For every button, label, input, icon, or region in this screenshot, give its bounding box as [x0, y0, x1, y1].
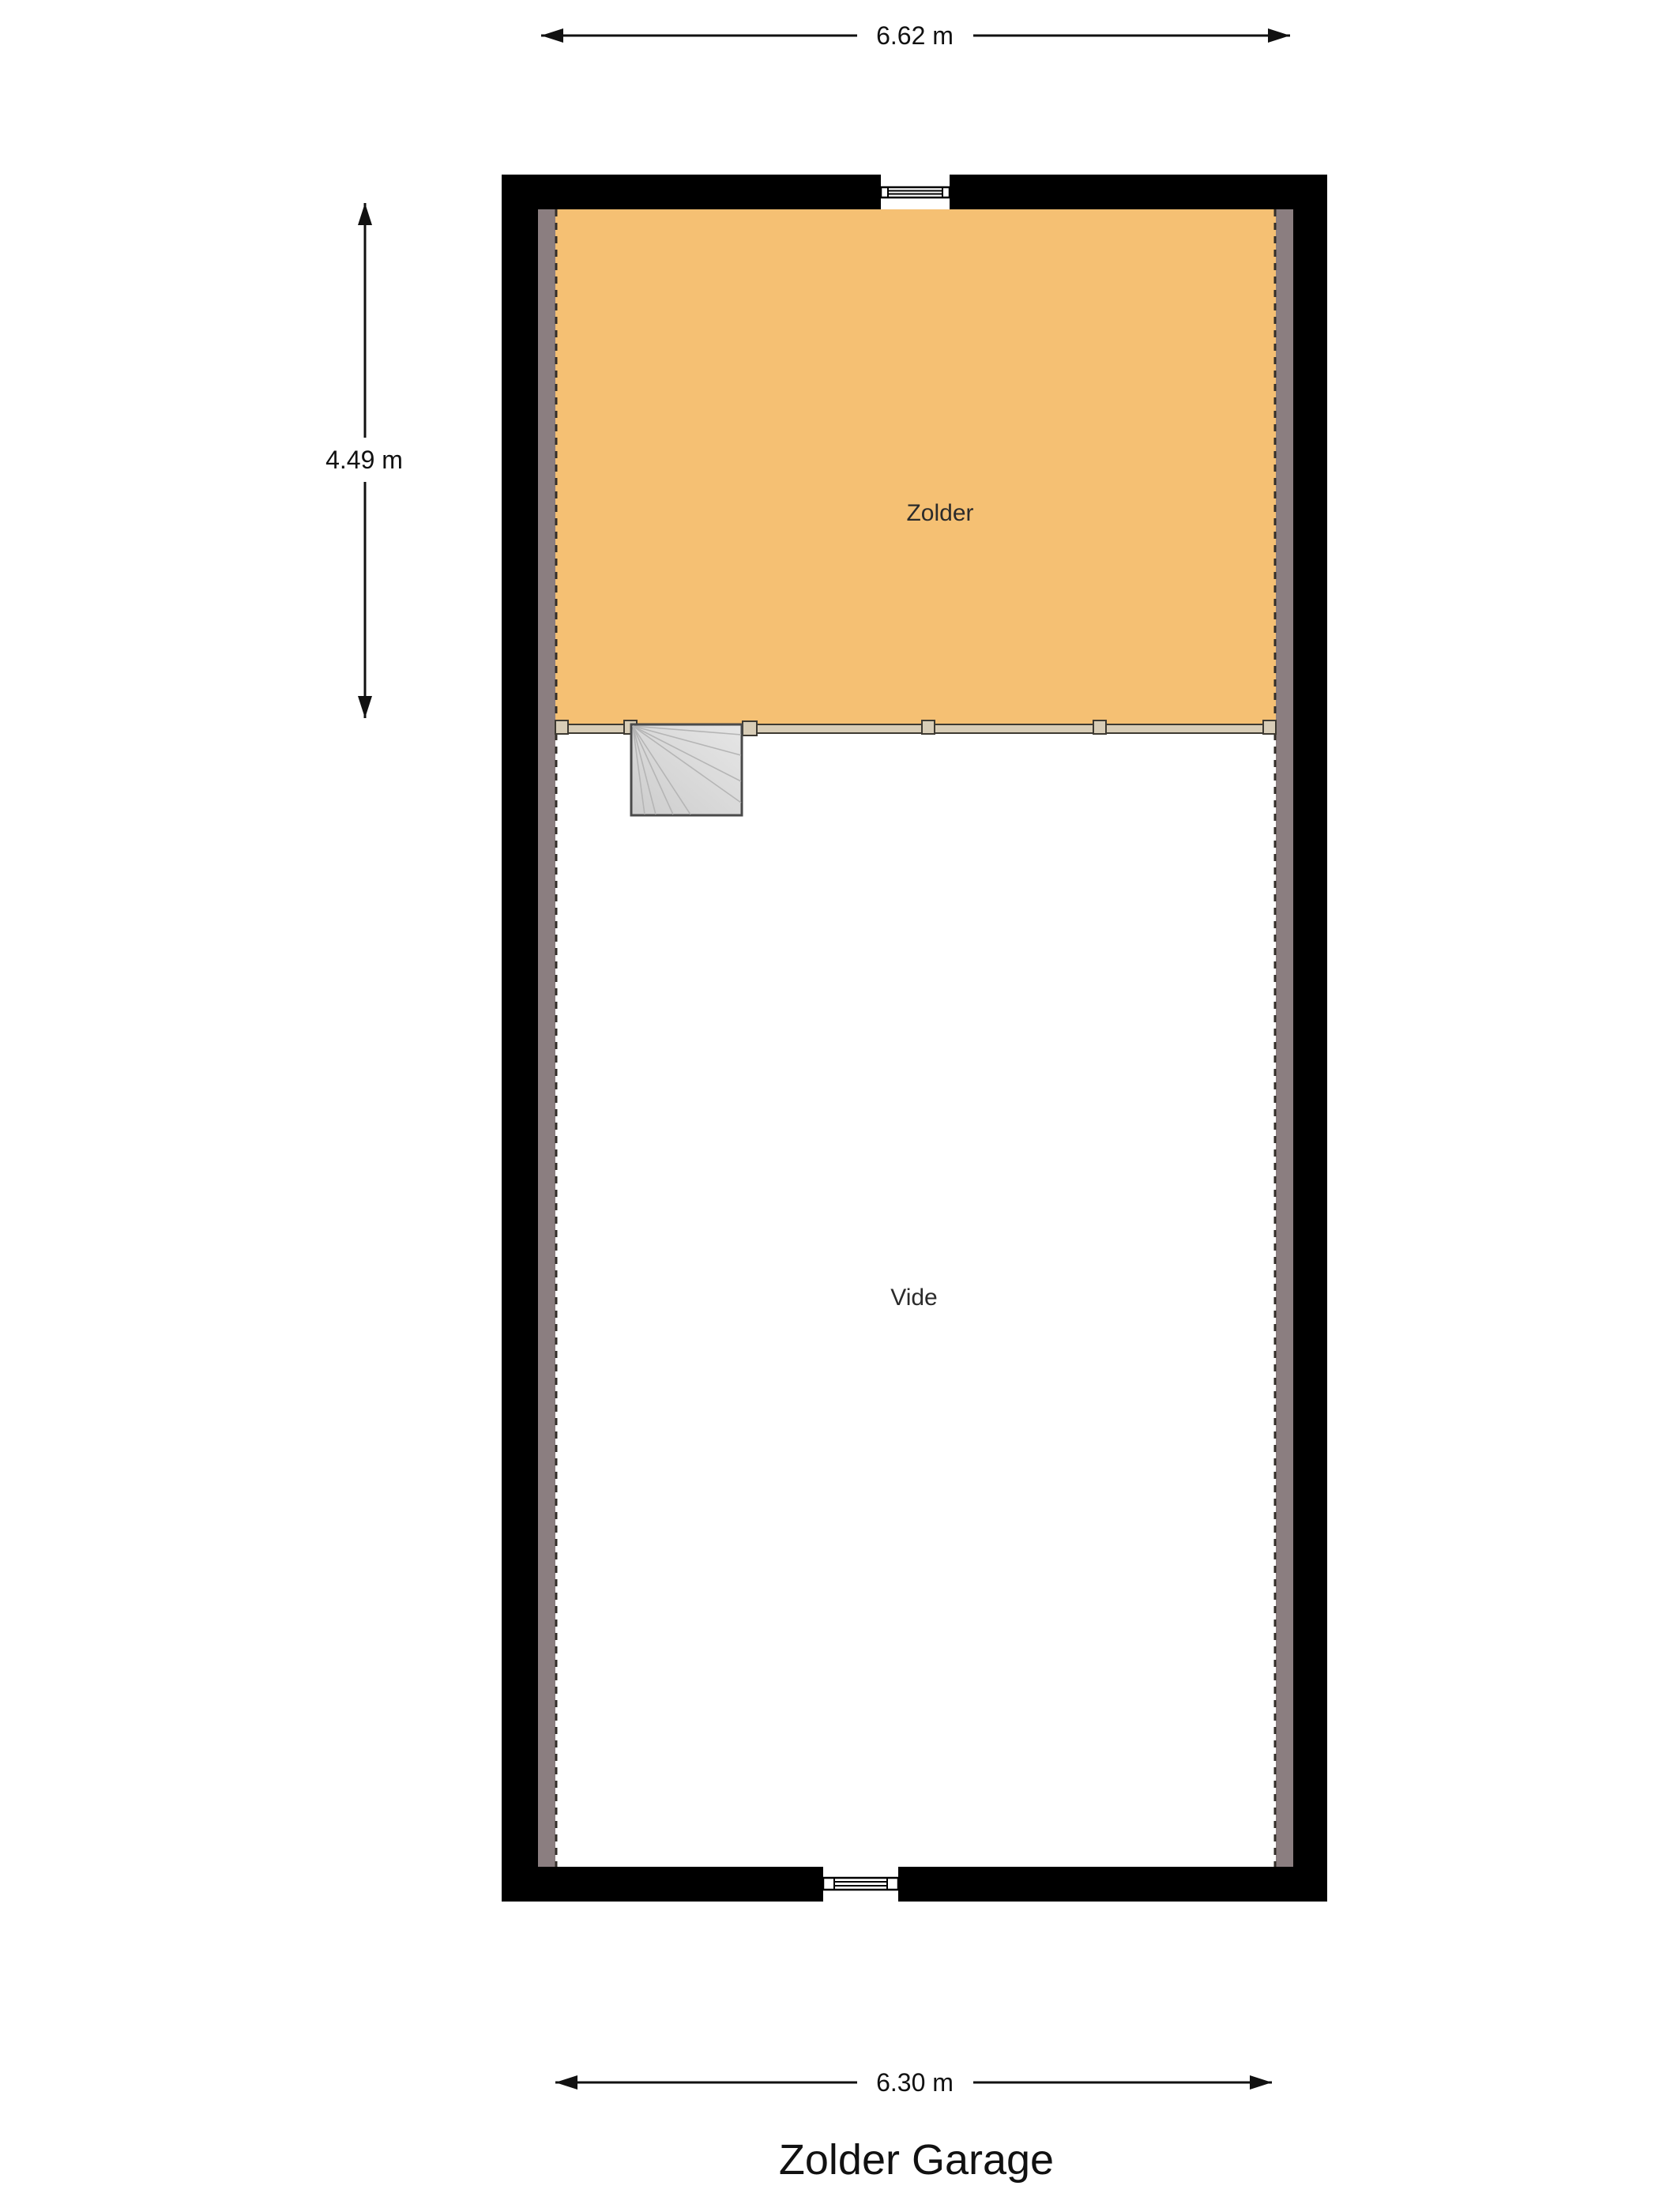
dimension-left-label: 4.49 m [325, 446, 403, 474]
arrowhead-right-icon [1250, 2075, 1272, 2090]
dimension-left: 4.49 m [325, 203, 403, 718]
wall-finish-right [1276, 209, 1293, 1867]
arrowhead-left-icon [541, 28, 563, 43]
room-zolder-floor[interactable] [555, 209, 1276, 724]
railing-post [1093, 720, 1106, 734]
arrowhead-down-icon [358, 696, 372, 718]
arrowhead-up-icon [358, 203, 372, 225]
railing-post [922, 720, 935, 734]
dimension-top-label: 6.62 m [876, 21, 954, 50]
staircase[interactable] [631, 724, 742, 815]
floor-plan-page: 6.62 m 4.49 m 6.30 m Zolder Vide Zolder … [0, 0, 1659, 2212]
arrowhead-right-icon [1268, 28, 1290, 43]
page-title: Zolder Garage [779, 2136, 1054, 2184]
railing-post [743, 721, 757, 735]
railing-post [1263, 720, 1276, 734]
railing-post [555, 720, 568, 734]
room-label-zolder: Zolder [906, 500, 973, 526]
arrowhead-left-icon [555, 2075, 577, 2090]
wall-finish-left [538, 209, 555, 1867]
room-label-vide: Vide [890, 1285, 938, 1311]
dimension-top: 6.62 m [541, 21, 1290, 50]
window-bottom[interactable] [823, 1867, 898, 1903]
dimension-bottom: 6.30 m [555, 2068, 1272, 2097]
window-top[interactable] [881, 173, 950, 209]
dimension-bottom-label: 6.30 m [876, 2068, 954, 2097]
